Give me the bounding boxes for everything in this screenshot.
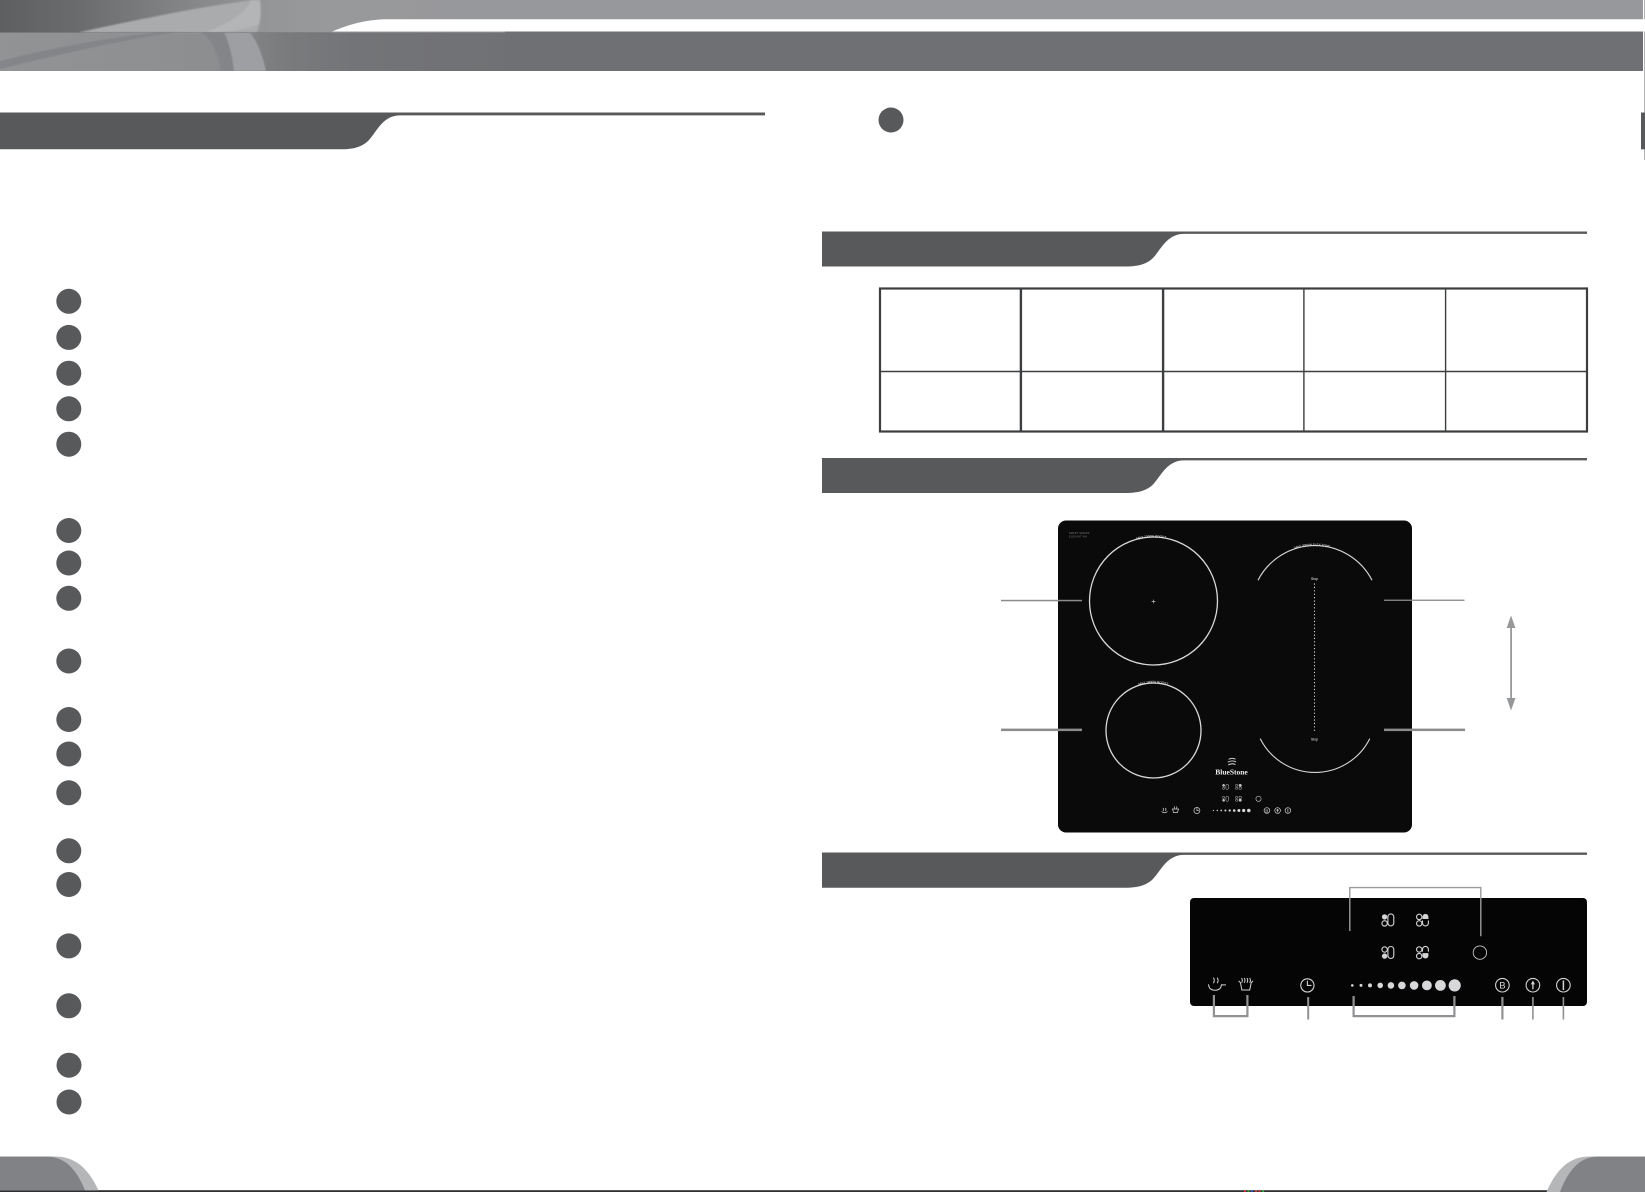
svg-text:Stop: Stop bbox=[1311, 737, 1318, 741]
svg-text:B: B bbox=[1499, 981, 1505, 992]
svg-text:ELEGANT 4IH: ELEGANT 4IH bbox=[1069, 535, 1087, 538]
svg-text:B: B bbox=[1265, 808, 1268, 813]
svg-text:BlueStone: BlueStone bbox=[1215, 768, 1248, 777]
svg-text:SMART SERIES: SMART SERIES bbox=[1069, 532, 1090, 535]
svg-text:Stop: Stop bbox=[1311, 577, 1318, 581]
